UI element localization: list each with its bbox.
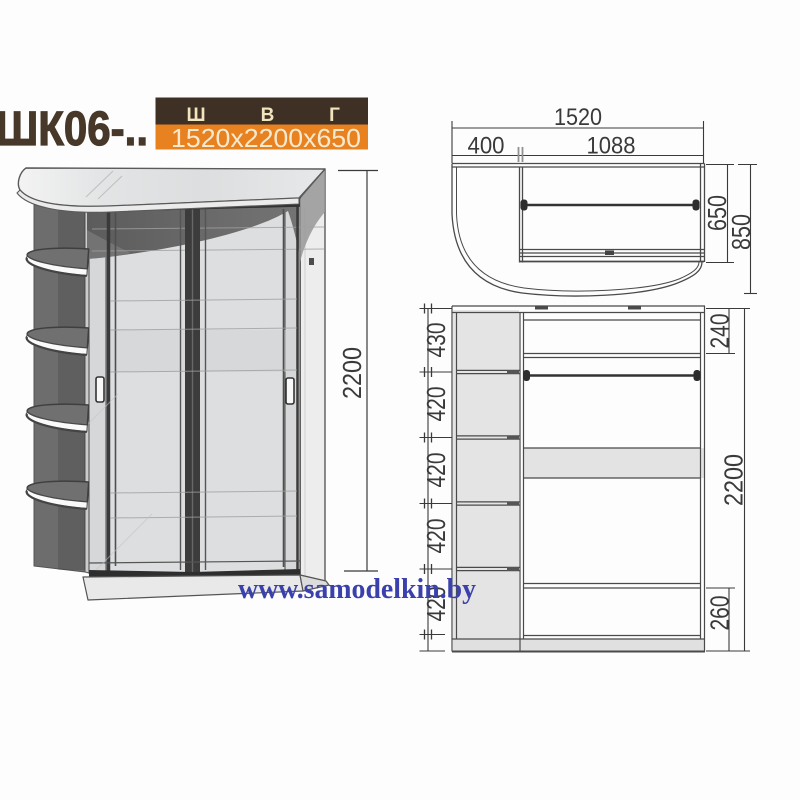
svg-text:400: 400 xyxy=(468,133,505,160)
svg-text:2200: 2200 xyxy=(337,347,367,399)
svg-text:260: 260 xyxy=(705,596,735,631)
svg-text:420: 420 xyxy=(421,453,451,488)
svg-text:240: 240 xyxy=(705,314,735,349)
svg-text:2200: 2200 xyxy=(719,454,749,506)
svg-text:ШК06-..: ШК06-.. xyxy=(0,103,148,156)
svg-text:420: 420 xyxy=(421,519,451,554)
svg-text:1520x2200x650: 1520x2200x650 xyxy=(171,123,361,153)
svg-text:850: 850 xyxy=(726,214,756,250)
svg-text:1520: 1520 xyxy=(554,104,602,131)
svg-text:1088: 1088 xyxy=(587,133,636,160)
svg-text:www.samodelkin.by: www.samodelkin.by xyxy=(238,574,476,605)
svg-text:420: 420 xyxy=(421,387,451,422)
svg-text:430: 430 xyxy=(421,323,451,358)
